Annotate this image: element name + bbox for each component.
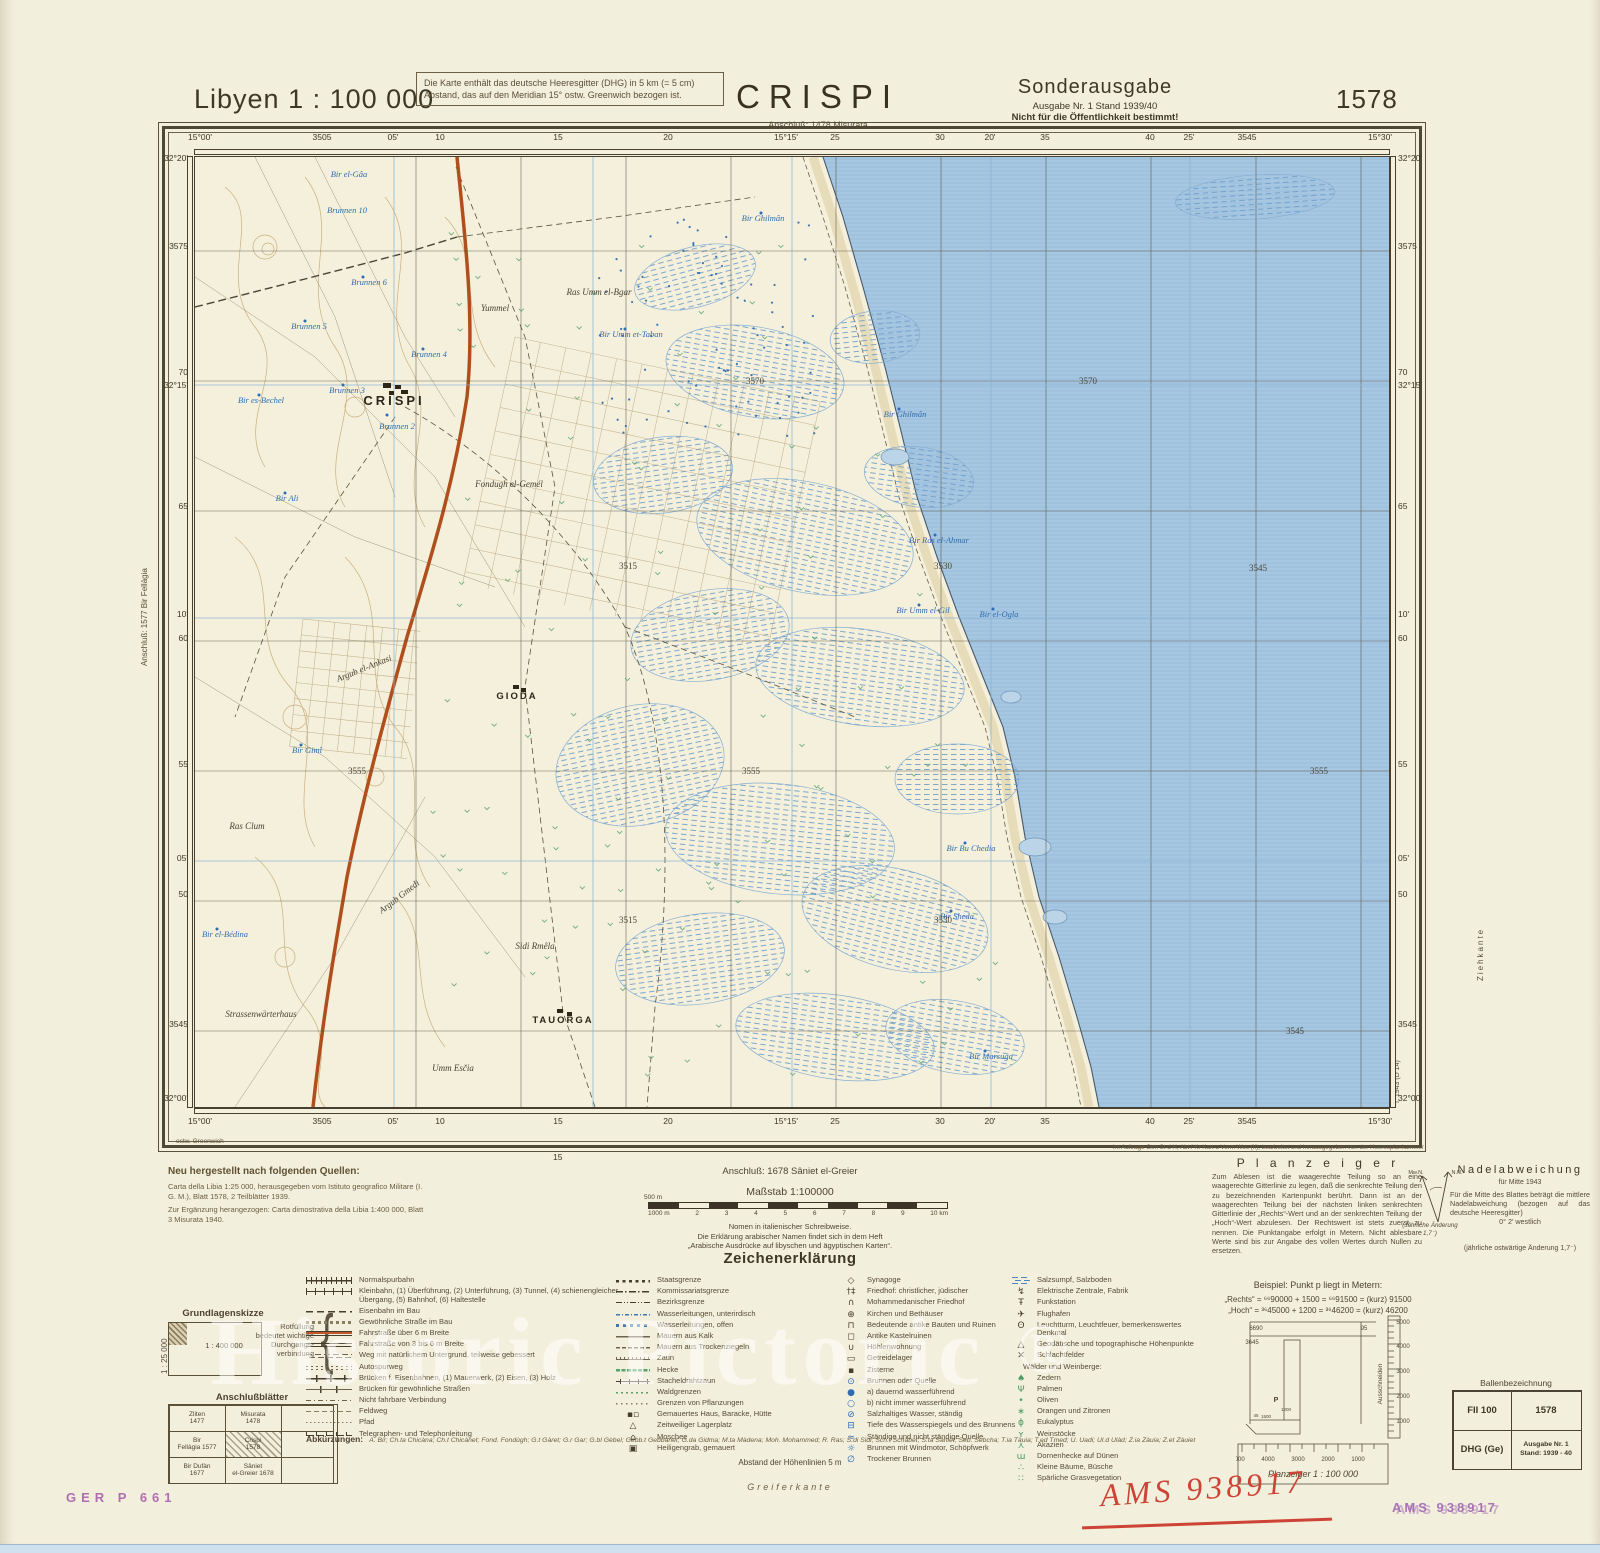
abbreviations-label: Abkürzungen: [306,1434,363,1444]
series-title: Libyen 1 : 100 000 [194,84,434,115]
legend-label: Orangen und Zitronen [1037,1407,1110,1416]
legend-row: ↯ Elektrische Zentrale, Fabrik [1012,1287,1212,1296]
left-adjoining-note: Anschluß: 1577 Bir Fellàgia [140,568,149,666]
legend-row: Staatsgrenze [616,1276,844,1285]
legend-row: Salzsumpf, Salzboden [1012,1276,1212,1285]
legend-row: △ Zeitweiliger Lagerplatz [616,1421,844,1430]
sheet-number: 1578 [1336,84,1398,115]
anschluss-bottom: Anschluß: 1678 Sâniet el-Greier [560,1166,1020,1177]
planzeiger-body: Zum Ablesen ist die waagerechte Teilung … [1212,1172,1422,1256]
map-label: Bir el-Gâa [331,169,368,179]
map-label: GIODA [496,691,537,702]
legend-symbol: †‡ [842,1287,860,1296]
legend-symbol: ▪▫ [616,1410,650,1419]
sheet-name: CRISPI [688,78,948,116]
abbreviations: Abkürzungen:A. Bir; Ch.ta Chicàna; Ch.t … [306,1434,1216,1444]
edition-title: Sonderausgabe [980,76,1210,99]
ballen-cell: DHG (Ge) [1453,1430,1512,1470]
legend-label: Normalspurbahn [359,1276,414,1285]
sources-heading: Neu hergestellt nach folgenden Quellen: [168,1166,360,1177]
legend-symbol [616,1287,650,1296]
edition-line1: Ausgabe Nr. 1 Stand 1939/40 [980,101,1210,112]
grundlagen-hatch [169,1323,187,1345]
svg-text:1000: 1000 [1351,1457,1365,1463]
map-label: Brunnen 6 [351,277,387,287]
legend-symbol [616,1276,650,1285]
legend-symbol: ☼ [842,1444,860,1453]
svg-text:1500: 1500 [1261,1414,1272,1419]
planzeiger-example-heading: Beispiel: Punkt p liegt in Metern: [1212,1280,1424,1290]
map-label: Fondugh el-Gemél [474,479,543,489]
scale-number: 2 [695,1210,699,1217]
legend-row: Pfad [306,1418,650,1427]
adjoining-sheet-cell: Bir Fellàgia 1577 [169,1431,226,1458]
svg-text:1000: 1000 [1396,1419,1410,1425]
nomen-note: Nomen in italienischer Schreibweise. Die… [560,1222,1020,1251]
scale-number: 1000 m [648,1210,670,1217]
map-label: 3530 [934,915,953,925]
map-label: Bir el-Ogla [980,609,1019,619]
map-label: Umm Esčia [432,1063,474,1073]
scale-bar: 500 m 1000 m2345678910 km [648,1202,948,1217]
map-label: Bir Bu Chedia [946,843,995,853]
legend-symbol: △ [616,1421,650,1430]
legend-row: ☼ Brunnen mit Windmotor, Schöpfwerk [842,1444,1038,1453]
legend-symbol: ɸ [1012,1418,1030,1427]
legend-symbol [306,1287,352,1296]
registered-mark: ® [1016,1311,1074,1388]
tick-band-top [194,149,1390,155]
ams-underline [1082,1518,1332,1529]
svg-text:2000: 2000 [1321,1457,1335,1463]
map-label: Sidi Rmêla [515,941,555,951]
adjoining-sheet-cell: Sâniet el-Greier 1678 [225,1457,282,1484]
map-label: 3530 [934,561,953,571]
legend-row: ▣ Heiligengrab, gemauert [616,1444,844,1453]
map-label: Brunnen 4 [411,349,447,359]
legend-label: Friedhof: christlicher, jüdischer [867,1287,968,1296]
source-line: Zur Ergänzung herangezogen: Carta dimost… [168,1205,428,1224]
legend-symbol: ⊘ [842,1410,860,1419]
map-label: Brunnen 5 [291,321,327,331]
legend-row: ◇ Synagoge [842,1276,1038,1285]
map-label: Bir Ghilmân [742,213,785,223]
declination-title: Nadelabweichung [1448,1164,1592,1176]
map-label: Brunnen 3 [329,385,365,395]
legend-label: Feldweg [359,1407,387,1416]
legend-label: Brunnen mit Windmotor, Schöpfwerk [867,1444,989,1453]
legend-symbol: ◇ [842,1276,860,1285]
legend-symbol: ▣ [616,1444,650,1453]
map-canvas: CRISPIGIODATAUORGAYummelRas Umm el-BgarS… [194,156,1390,1108]
legend-label: Salzsumpf, Salzboden [1037,1276,1112,1285]
legend-symbol: ∗ [1012,1407,1030,1416]
tick-band-left [187,156,193,1108]
map-label: Bir Marsuga [969,1051,1013,1061]
scale-number: 8 [872,1210,876,1217]
map-label: 3570 [746,376,765,386]
map-artwork: CRISPIGIODATAUORGAYummelRas Umm el-BgarS… [195,157,1389,1107]
map-label: 3570 [1079,376,1098,386]
declination-change-note: (jährliche ostwärtige Änderung 1,7⁻) [1446,1244,1594,1252]
map-label: 3515 [619,561,638,571]
legend-symbol: ⊟ [842,1421,860,1430]
svg-text:Mw.N.: Mw.N. [1408,1170,1424,1176]
edition-block: Sonderausgabe Ausgabe Nr. 1 Stand 1939/4… [980,76,1210,123]
legend-label: Eukalyptus [1037,1418,1074,1427]
legend-title: Zeichenerklärung [560,1250,1020,1267]
legend-row: ▪▫ Gemauertes Haus, Baracke, Hütte [616,1410,844,1419]
map-label: Bir Umm el-Gil [896,605,950,615]
ballen-cell: 1578 [1511,1391,1582,1431]
contour-interval-note: Abstand der Höhenlinien 5 m [560,1458,1020,1467]
map-label: Bir Ghilmân [884,409,927,419]
scale-number: 6 [813,1210,817,1217]
map-label: 3545 [1286,1026,1305,1036]
scale-number: 10 km [930,1210,948,1217]
legend-label: Heiligengrab, gemauert [657,1444,735,1453]
scale-statement: Maßstab 1:100000 [560,1186,1020,1198]
legend-symbol [306,1276,352,1285]
scale-bar-cells [648,1202,948,1209]
publisher-line: Im Auftrage Gen St d H, Abt f Kr Kart u … [1000,1144,1424,1151]
greiferkante-label: Greiferkante [560,1482,1020,1492]
legend-label: Salzhaltiges Wasser, ständig [867,1410,963,1419]
map-label: Ras Clum [228,821,265,831]
scale-pre: 500 m [644,1194,662,1201]
legend-label: Tiefe des Wasserspiegels und des Brunnen… [867,1421,1015,1430]
scale-number: 5 [784,1210,788,1217]
map-label: Bir Umm et-Taban [599,329,662,339]
legend-label: Elektrische Zentrale, Fabrik [1037,1287,1128,1296]
map-label: Brunnen 2 [379,421,415,431]
greenwich-note: ostw. Greenwich [176,1138,224,1145]
scale-number: 4 [754,1210,758,1217]
map-label: Bir es-Bechel [238,395,285,405]
sources-lines: Carta della Libia 1:25 000, herausgegebe… [168,1182,428,1224]
legend-label: Pfad [359,1418,374,1427]
map-label: Ras Umm el-Bgar [566,287,632,297]
map-label: 3515 [619,915,638,925]
declination-body: Für die Mitte des Blattes beträgt die mi… [1450,1190,1590,1226]
grundlagen-side-scale: 1 : 25 000 [160,1374,196,1383]
adjoining-sheet-cell [281,1457,334,1484]
scale-numbers: 1000 m2345678910 km [648,1210,948,1217]
svg-text:4000: 4000 [1261,1457,1275,1463]
legend-symbol: ↯ [1012,1287,1030,1296]
legend-label: Staatsgrenze [657,1276,701,1285]
map-label: 3555 [1310,766,1329,776]
legend-label: Kleine Bäume, Büsche [1037,1463,1113,1472]
source-line: Carta della Libia 1:25 000, herausgegebe… [168,1182,428,1201]
legend-row: Normalspurbahn [306,1276,650,1285]
legend-symbol [306,1407,352,1416]
map-label: 3555 [348,766,367,776]
scale-number: 7 [842,1210,846,1217]
map-label: Bir el-Bédina [202,929,248,939]
svg-text:1200: 1200 [1281,1407,1292,1412]
planzeiger-title: P l a n z e i g e r [1212,1156,1424,1170]
legend-symbol [1012,1276,1030,1285]
adjoining-sheet-cell: Misurata 1478 [225,1405,282,1432]
legend-row: ⊟ Tiefe des Wasserspiegels und des Brunn… [842,1421,1038,1430]
map-label: Strassenwärterhaus [225,1009,297,1019]
ziehkante-label: Ziehkante [1476,928,1485,981]
svg-text:5000: 5000 [1236,1457,1245,1463]
grid-note-box: Die Karte enthält das deutsche Heeresgit… [416,72,724,106]
watermark: Historic Pictoric ® [210,1296,1490,1407]
legend-label: Dornenhecke auf Dünen [1037,1452,1118,1461]
legend-row: ɯ Dornenhecke auf Dünen [1012,1452,1212,1461]
legend-row: Kommissariatsgrenze [616,1287,844,1296]
legend-row: ∗ Orangen und Zitronen [1012,1407,1212,1416]
ams-stamp: AMS 938917 [1392,1500,1498,1515]
legend-label: Zeitweiliger Lagerplatz [657,1421,732,1430]
adjoining-sheet-cell: Bir Dufàn 1677 [169,1457,226,1484]
adjoining-sheet-cell: Zliten 1477 [169,1405,226,1432]
svg-text:45: 45 [1253,1413,1259,1418]
legend-row: ɸ Eukalyptus [1012,1418,1212,1427]
map-label: CRISPI [363,393,424,408]
declination-value: 0° 2′ westlich [1450,1217,1590,1226]
map-label: 3545 [1249,563,1268,573]
map-label: Bir Ali [276,493,299,503]
ballen-cell: Ausgabe Nr. 1 Stand: 1939 - 40 [1511,1430,1582,1470]
map-label: Brunnen 10 [327,205,368,215]
map-label: Bir Gimî [292,745,323,755]
legend-row: Feldweg [306,1407,650,1416]
legend-symbol [306,1418,352,1427]
library-stamp: GER P 661 [66,1490,177,1505]
legend-label: Synagoge [867,1276,901,1285]
scale-number: 3 [725,1210,729,1217]
legend-row: ⊘ Salzhaltiges Wasser, ständig [842,1410,1038,1419]
adjoining-sheet-cell: Crispi 1578 [225,1431,282,1458]
map-label: TAUORGA [532,1015,593,1026]
legend-label: Kommissariatsgrenze [657,1287,729,1296]
below-frame-grid-number: 15 [553,1152,562,1162]
map-label: Yummel [481,303,510,313]
legend-label: Gemauertes Haus, Baracke, Hütte [657,1410,772,1419]
map-label: Bir Ras el-Ahmar [909,535,970,545]
map-sheet: Libyen 1 : 100 000 Die Karte enthält das… [0,0,1600,1552]
scale-number: 9 [901,1210,905,1217]
legend-row: †‡ Friedhof: christlicher, jüdischer [842,1287,1038,1296]
map-label: 3555 [742,766,761,776]
declination-subtitle: für Mitte 1943 [1448,1179,1592,1186]
tick-band-right [1390,156,1396,1108]
